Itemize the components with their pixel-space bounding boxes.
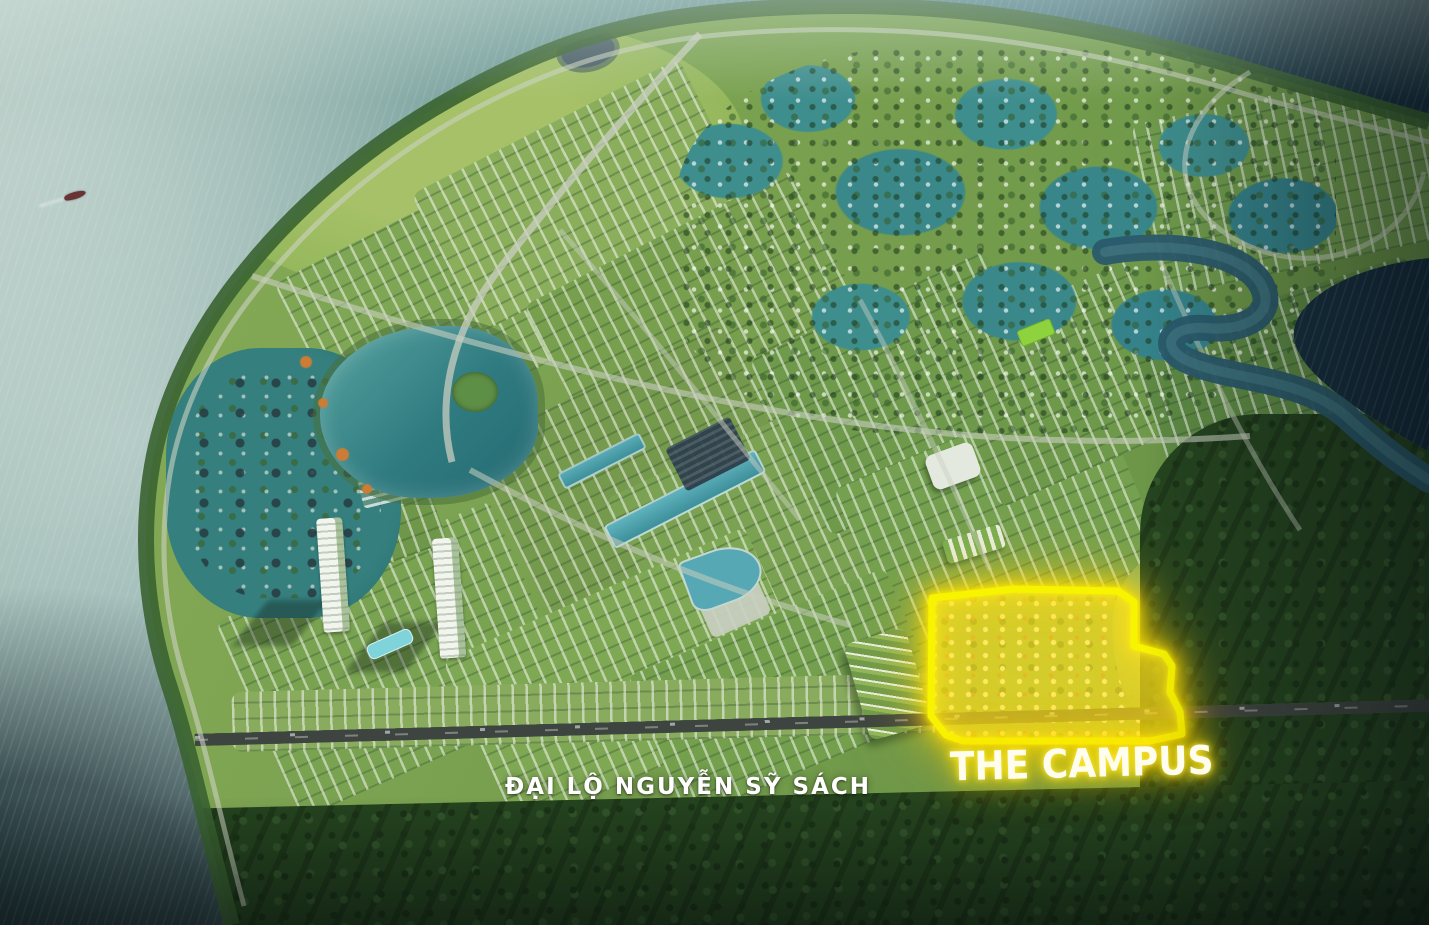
canal-district-trees	[676, 44, 1336, 434]
autumn-tree	[336, 448, 349, 461]
boulevard-label: ĐẠI LỘ NGUYỄN SỸ SÁCH	[505, 774, 850, 800]
lake-island	[452, 372, 498, 412]
campus-zone-label: THE CAMPUS	[949, 739, 1200, 791]
central-lake	[320, 326, 538, 498]
horizon-haze	[0, 0, 1429, 100]
autumn-tree	[300, 356, 312, 368]
aerial-masterplan-render: ĐẠI LỘ NGUYỄN SỸ SÁCH THE CAMPUS	[0, 0, 1429, 925]
autumn-tree	[362, 484, 372, 494]
autumn-tree	[318, 398, 328, 408]
